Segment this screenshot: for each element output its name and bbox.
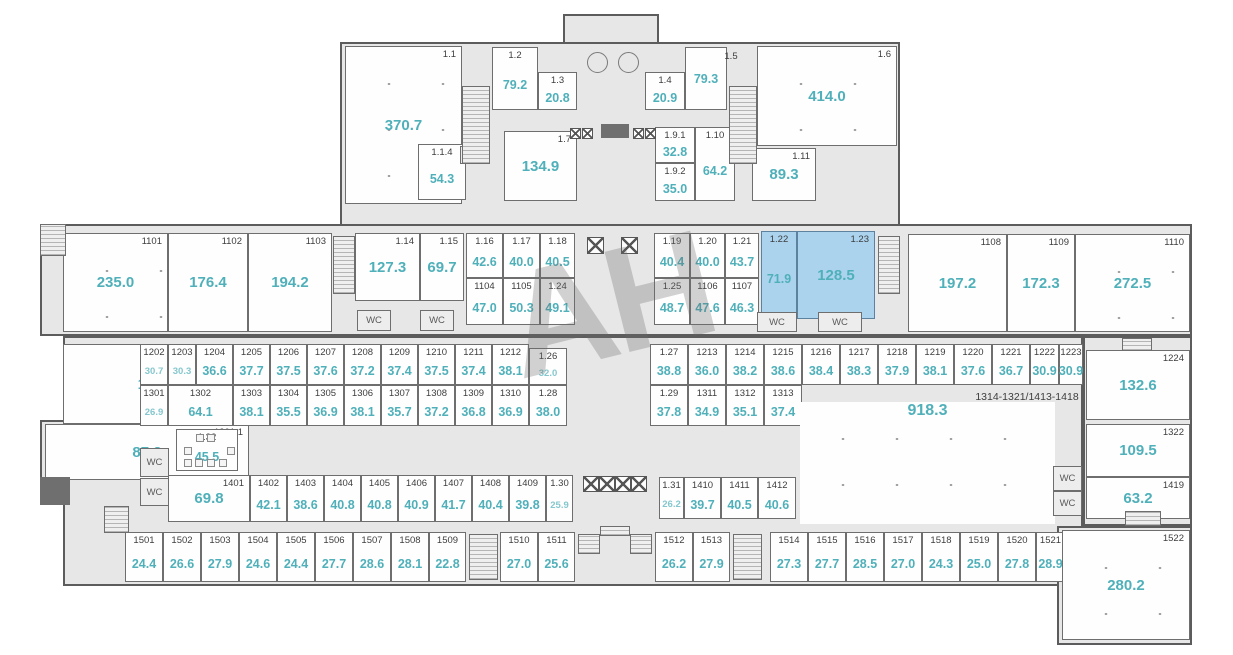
room-1.28: 1.2838.0: [529, 385, 567, 426]
room-number: 1506: [316, 533, 352, 546]
room-1516: 151628.5: [846, 532, 884, 582]
room-area: 28.6: [354, 546, 390, 581]
room-area: 27.8: [999, 546, 1035, 581]
room-1.5: 1.5: [716, 51, 746, 64]
room-918.3: 918.3: [800, 402, 1055, 524]
room-1308: 130837.2: [418, 385, 455, 426]
room-area: 36.8: [456, 399, 491, 425]
room-number: 1310: [493, 386, 528, 399]
room-1310: 131036.9: [492, 385, 529, 426]
room-number: 1.5: [716, 51, 746, 62]
room-area: 30.9: [1060, 358, 1082, 384]
room-1302: 130264.1: [168, 385, 233, 426]
room-number: 1.26: [530, 349, 566, 362]
room-1.2: 1.279.2: [492, 47, 538, 110]
room-area: 40.5: [722, 491, 757, 518]
room-number: 1107: [726, 279, 758, 292]
stairs-hatch-icon: [1125, 511, 1161, 526]
room-area: 38.3: [841, 358, 877, 384]
room-area: 26.2: [660, 491, 683, 518]
wc-room: WC: [420, 310, 454, 331]
room-1.30: 1.3025.9: [546, 475, 573, 522]
room-number: 1501: [126, 533, 162, 546]
room-area: 27.7: [316, 546, 352, 581]
room-1303: 130338.1: [233, 385, 270, 426]
room-number: 1301: [141, 386, 167, 399]
room-number: 1309: [456, 386, 491, 399]
room-area: 37.2: [419, 399, 454, 425]
wc-room: WC: [1053, 491, 1082, 516]
room-area: 127.3: [369, 259, 407, 276]
room-number: 1207: [308, 345, 343, 358]
room-area: 235.0: [97, 274, 135, 291]
room-1518: 151824.3: [922, 532, 960, 582]
room-area: 37.9: [879, 358, 915, 384]
room-area: 24.4: [278, 546, 314, 581]
room-number: 1.9.2: [656, 164, 694, 177]
room-1212: 121238.1: [492, 344, 529, 385]
room-1.24: 1.2449.1: [540, 278, 575, 325]
room-1412: 141240.6: [758, 477, 796, 519]
room-1503: 150327.9: [201, 532, 239, 582]
entrance-block: [40, 477, 70, 505]
room-1411: 141140.5: [721, 477, 758, 519]
room-area: 38.4: [803, 358, 839, 384]
room-number: 1.29: [651, 386, 687, 399]
furniture-icon: [195, 459, 203, 467]
room-number: 1518: [923, 533, 959, 546]
room-area: 71.9: [762, 245, 796, 312]
furniture-icon: [219, 459, 227, 467]
room-1208: 120837.2: [344, 344, 381, 385]
stairs-hatch-icon: [333, 236, 355, 294]
elevator-icon: [582, 128, 593, 139]
room-area: 38.0: [530, 399, 566, 425]
room-area: 40.9: [399, 489, 434, 521]
elevator-icon: [615, 476, 631, 492]
room-number: 1216: [803, 345, 839, 358]
room-area: 79.2: [493, 61, 537, 109]
room-1.19: 1.1940.4: [654, 233, 690, 278]
room-1.23-highlighted: 1.23128.5: [797, 231, 875, 319]
room-number: 1307: [382, 386, 417, 399]
room-1406: 140640.9: [398, 475, 435, 522]
room-range-label: 1314-1321/1413-1418: [975, 391, 1078, 403]
room-1.14: 1.14127.3: [355, 233, 420, 301]
entrance-column-icon: [587, 52, 608, 73]
room-number: 1312: [727, 386, 763, 399]
room-number: 1405: [362, 476, 397, 489]
room-area: 28.1: [392, 546, 428, 581]
room-area: 39.7: [685, 491, 720, 518]
room-area: 40.4: [473, 489, 508, 521]
room-area: 25.9: [547, 489, 572, 521]
room-number: 1402: [251, 476, 286, 489]
room-area: 40.5: [541, 247, 574, 277]
room-1305: 130536.9: [307, 385, 344, 426]
room-area: 35.0: [656, 177, 694, 200]
room-1204: 120436.6: [196, 344, 233, 385]
room-1301: 130126.9: [140, 385, 168, 426]
room-area: 48.7: [655, 292, 689, 324]
room-area: 63.2: [1123, 490, 1152, 507]
room-number: 1507: [354, 533, 390, 546]
room-number: 1313: [765, 386, 801, 399]
stairs-hatch-icon: [729, 86, 757, 164]
wc-room: WC: [140, 478, 169, 506]
room-area: 918.3: [800, 402, 1055, 420]
room-1409: 140939.8: [509, 475, 546, 522]
furniture-icon: [184, 447, 192, 455]
room-1407: 140741.7: [435, 475, 472, 522]
room-area: 43.7: [726, 247, 758, 277]
room-area: 64.1: [169, 399, 232, 425]
room-area: 128.5: [817, 267, 855, 284]
room-area: 47.0: [467, 292, 502, 324]
room-number: 1.30: [547, 476, 572, 489]
room-area: 26.2: [656, 546, 692, 581]
room-1214: 121438.2: [726, 344, 764, 385]
room-1509: 150922.8: [429, 532, 466, 582]
room-area: 38.1: [917, 358, 953, 384]
room-area: 36.6: [197, 358, 232, 384]
room-1217: 121738.3: [840, 344, 878, 385]
furniture-icon: [207, 459, 215, 467]
room-number: 1108: [981, 237, 1001, 248]
room-number: 1.1: [443, 49, 456, 60]
room-area: 132.6: [1119, 377, 1157, 394]
room-area: 197.2: [939, 275, 977, 292]
entrance-block: [601, 124, 629, 138]
room-1216: 121638.4: [802, 344, 840, 385]
room-1504: 150424.6: [239, 532, 277, 582]
room-number: 1514: [771, 533, 807, 546]
room-number: 1408: [473, 476, 508, 489]
room-area: 46.3: [726, 292, 758, 324]
room-1101: 1101235.0: [63, 233, 168, 332]
room-area: 32.0: [530, 362, 566, 384]
room-number: 1104: [467, 279, 502, 292]
room-1210: 121037.5: [418, 344, 455, 385]
room-1405: 140540.8: [361, 475, 398, 522]
room-1511: 151125.6: [538, 532, 575, 582]
room-1.4: 1.420.9: [645, 72, 685, 110]
room-area: 37.5: [419, 358, 454, 384]
room-area: 38.8: [651, 358, 687, 384]
room-1.11: 1.1189.3: [752, 148, 816, 201]
stairs-hatch-icon: [1122, 338, 1152, 351]
room-number: 1411: [722, 478, 757, 491]
room-number: 1512: [656, 533, 692, 546]
room-area: 37.6: [308, 358, 343, 384]
room-area: 28.5: [847, 546, 883, 581]
room-1306: 130638.1: [344, 385, 381, 426]
room-number: 1.23: [851, 234, 870, 245]
room-number: 1106: [691, 279, 724, 292]
room-number: 1521: [1037, 533, 1064, 546]
room-area: 38.1: [234, 399, 269, 425]
elevator-icon: [599, 476, 615, 492]
room-1313: 131337.4: [764, 385, 802, 426]
stairs-hatch-icon: [578, 534, 600, 554]
room-area: 42.6: [467, 247, 502, 277]
room-1513: 151327.9: [693, 532, 730, 582]
room-number: 1516: [847, 533, 883, 546]
room-1514: 151427.3: [770, 532, 808, 582]
room-number: 1220: [955, 345, 991, 358]
room-1110: 1110272.5: [1075, 234, 1190, 332]
room-area: 27.9: [694, 546, 729, 581]
room-number: 1.31: [660, 478, 683, 491]
furniture-icon: [227, 447, 235, 455]
room-number: 1419: [1163, 480, 1184, 491]
room-number: 1510: [501, 533, 537, 546]
room-area: 40.0: [504, 247, 539, 277]
room-1223: 122330.9: [1059, 344, 1083, 385]
room-number: 1302: [169, 386, 232, 399]
stairs-hatch-icon: [878, 236, 900, 294]
room-1102: 1102176.4: [168, 233, 248, 332]
room-number: 1109: [1049, 237, 1069, 248]
room-1224: 1224132.6: [1086, 350, 1190, 420]
room-area: 47.6: [691, 292, 724, 324]
room-number: 1.11: [792, 151, 810, 162]
room-number: 1.15: [440, 236, 459, 247]
room-1.31: 1.3126.2: [659, 477, 684, 519]
room-1522: 1522280.2: [1062, 530, 1190, 640]
elevator-icon: [645, 128, 656, 139]
elevator-icon: [570, 128, 581, 139]
room-1219: 121938.1: [916, 344, 954, 385]
room-number: 1409: [510, 476, 545, 489]
room-1209: 120937.4: [381, 344, 418, 385]
room-1.1.4: 1.1.454.3: [418, 144, 466, 200]
room-1.22-highlighted: 1.2271.9: [761, 231, 797, 313]
room-area: 37.8: [651, 399, 687, 425]
room-number: 1.14: [396, 236, 415, 247]
room-1502: 150226.6: [163, 532, 201, 582]
entrance-column-icon: [618, 52, 639, 73]
room-area: 176.4: [189, 274, 227, 291]
room-1.17: 1.1740.0: [503, 233, 540, 278]
room-1.27: 1.2738.8: [650, 344, 688, 385]
room-area: 89.3: [769, 166, 798, 183]
wc-room: WC: [1053, 466, 1082, 491]
room-number: 1509: [430, 533, 465, 546]
room-area: 42.1: [251, 489, 286, 521]
stairs-hatch-icon: [630, 534, 652, 554]
room-1.29: 1.2937.8: [650, 385, 688, 426]
room-number: 1.21: [726, 234, 758, 247]
room-number: 1213: [689, 345, 725, 358]
room-1106: 110647.6: [690, 278, 725, 325]
room-area: 35.5: [271, 399, 306, 425]
room-number: 1211: [456, 345, 491, 358]
room-1104: 110447.0: [466, 278, 503, 325]
room-area: 38.6: [765, 358, 801, 384]
room-number: 1517: [885, 533, 921, 546]
room-number: 1511: [539, 533, 574, 546]
room-number: 1.20: [691, 234, 724, 247]
room-1202: 120230.7: [140, 344, 168, 385]
room-area: 26.6: [164, 546, 200, 581]
elevator-icon: [621, 237, 638, 254]
floor-plan: 1.1370.71.279.21.320.81.420.979.31.51.64…: [0, 0, 1233, 655]
room-area: 37.7: [234, 358, 269, 384]
room-number: 1404: [325, 476, 360, 489]
room-area: 40.4: [655, 247, 689, 277]
room-1506: 150627.7: [315, 532, 353, 582]
room-number: 1223: [1060, 345, 1082, 358]
room-1520: 152027.8: [998, 532, 1036, 582]
stairs-hatch-icon: [40, 224, 66, 256]
stairs-hatch-icon: [469, 534, 498, 580]
room-number: 1206: [271, 345, 306, 358]
room-area: 24.6: [240, 546, 276, 581]
room-number: 1202: [141, 345, 167, 358]
room-area: 27.9: [202, 546, 238, 581]
room-area: 36.0: [689, 358, 725, 384]
elevator-icon: [631, 476, 647, 492]
room-number: 1503: [202, 533, 238, 546]
room-1.15: 1.1569.7: [420, 233, 464, 301]
room-1512: 151226.2: [655, 532, 693, 582]
room-number: 1203: [169, 345, 195, 358]
room-1304: 130435.5: [270, 385, 307, 426]
furniture-icon: [196, 434, 204, 442]
room-area: 50.3: [504, 292, 539, 324]
room-area: 36.9: [308, 399, 343, 425]
room-number: 1101: [142, 236, 162, 247]
room-1.3: 1.320.8: [538, 72, 577, 110]
room-number: 1221: [993, 345, 1029, 358]
room-area: 41.7: [436, 489, 471, 521]
room-number: 1502: [164, 533, 200, 546]
room-1.9.1: 1.9.132.8: [655, 127, 695, 163]
room-number: 1102: [222, 236, 242, 247]
elevator-icon: [587, 237, 604, 254]
room-area: 69.7: [427, 259, 456, 276]
room-area: 27.7: [809, 546, 845, 581]
room-1307: 130735.7: [381, 385, 418, 426]
room-1311: 131134.9: [688, 385, 726, 426]
room-area: 20.9: [646, 86, 684, 109]
room-number: 1412: [759, 478, 795, 491]
stairs-hatch-icon: [104, 506, 129, 533]
room-area: 36.9: [493, 399, 528, 425]
room-number: 1105: [504, 279, 539, 292]
room-number: 1.16: [467, 234, 502, 247]
room-area: 38.1: [493, 358, 528, 384]
room-1.9.2: 1.9.235.0: [655, 163, 695, 201]
room-area: 40.8: [362, 489, 397, 521]
room-area: 37.2: [345, 358, 380, 384]
room-area: 27.0: [885, 546, 921, 581]
room-1.21: 1.2143.7: [725, 233, 759, 278]
room-number: 1219: [917, 345, 953, 358]
wc-room: WC: [357, 310, 391, 331]
room-1220: 122037.6: [954, 344, 992, 385]
wc-room: WC: [757, 312, 797, 332]
room-number: 1303: [234, 386, 269, 399]
room-number: 1311: [689, 386, 725, 399]
room-number: 1.19: [655, 234, 689, 247]
room-1402: 140242.1: [250, 475, 287, 522]
room-area: 272.5: [1114, 275, 1152, 292]
room-1.25: 1.2548.7: [654, 278, 690, 325]
room-1309: 130936.8: [455, 385, 492, 426]
room-1109: 1109172.3: [1007, 234, 1075, 332]
room-1105: 110550.3: [503, 278, 540, 325]
room-1107: 110746.3: [725, 278, 759, 325]
room-number: 1308: [419, 386, 454, 399]
room-area: 54.3: [419, 158, 465, 199]
room-number: 1403: [288, 476, 323, 489]
room-1408: 140840.4: [472, 475, 509, 522]
room-number: 1204: [197, 345, 232, 358]
room-number: 1.4: [646, 73, 684, 86]
room-1222: 122230.9: [1030, 344, 1059, 385]
room-number: 1504: [240, 533, 276, 546]
room-area: 24.4: [126, 546, 162, 581]
room-1515: 151527.7: [808, 532, 846, 582]
room-number: 1410: [685, 478, 720, 491]
room-area: 37.6: [955, 358, 991, 384]
room-area: 36.7: [993, 358, 1029, 384]
room-1505: 150524.4: [277, 532, 315, 582]
elevator-icon: [583, 476, 599, 492]
room-number: 1305: [308, 386, 343, 399]
room-number: 1.18: [541, 234, 574, 247]
room-number: 1520: [999, 533, 1035, 546]
room-number: 1.28: [530, 386, 566, 399]
room-1312: 131235.1: [726, 385, 764, 426]
room-number: 1205: [234, 345, 269, 358]
room-number: 1508: [392, 533, 428, 546]
room-area: 414.0: [808, 88, 846, 105]
elevator-icon: [633, 128, 644, 139]
stairs-hatch-icon: [600, 526, 630, 536]
room-number: 1224: [1163, 353, 1184, 364]
room-1322: 1322109.5: [1086, 424, 1190, 477]
room-1.6: 1.6414.0: [757, 46, 897, 146]
room-1403: 140338.6: [287, 475, 324, 522]
room-area: 172.3: [1022, 275, 1060, 292]
room-1108: 1108197.2: [908, 234, 1007, 332]
room-area: 38.6: [288, 489, 323, 521]
room-area: 38.1: [345, 399, 380, 425]
room-1215: 121538.6: [764, 344, 802, 385]
room-number: 1.9.1: [656, 128, 694, 141]
room-area: 69.8: [194, 490, 223, 507]
room-number: 1.17: [504, 234, 539, 247]
room-area: 49.1: [541, 292, 574, 324]
room-area: 25.0: [961, 546, 997, 581]
room-number: 1515: [809, 533, 845, 546]
room-number: 1407: [436, 476, 471, 489]
room-area: 194.2: [271, 274, 309, 291]
room-area: 24.3: [923, 546, 959, 581]
room-area: 37.4: [456, 358, 491, 384]
room-number: 1222: [1031, 345, 1058, 358]
room-1507: 150728.6: [353, 532, 391, 582]
room-1401: 140169.8: [168, 475, 250, 522]
furniture-icon: [207, 434, 215, 442]
room-area: 34.9: [689, 399, 725, 425]
room-number: 1.24: [541, 279, 574, 292]
room-1510: 151027.0: [500, 532, 538, 582]
room-1.20: 1.2040.0: [690, 233, 725, 278]
